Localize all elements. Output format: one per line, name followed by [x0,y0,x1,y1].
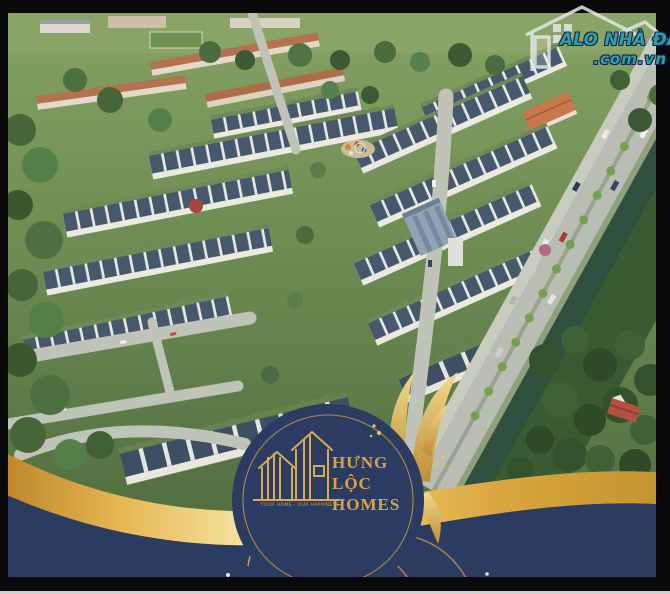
brand-tagline: YOUR HOME - OUR HAPPINESS [254,503,346,508]
watermark: ALO NHÀ ĐẤT .com.vn [518,0,670,78]
brand-line-1: HƯNG [332,452,400,473]
real-estate-ad: HƯNG LỘC HOMES YOUR HOME - OUR HAPPINESS… [0,0,670,594]
frame-left [0,0,8,594]
watermark-domain: .com.vn [593,50,667,68]
frame-right [656,0,670,594]
watermark-site-name: ALO NHÀ ĐẤT [560,30,670,49]
gold-houses-icon [250,430,340,508]
brand-line-2: LỘC [332,473,400,494]
frame-bottom [0,577,670,591]
